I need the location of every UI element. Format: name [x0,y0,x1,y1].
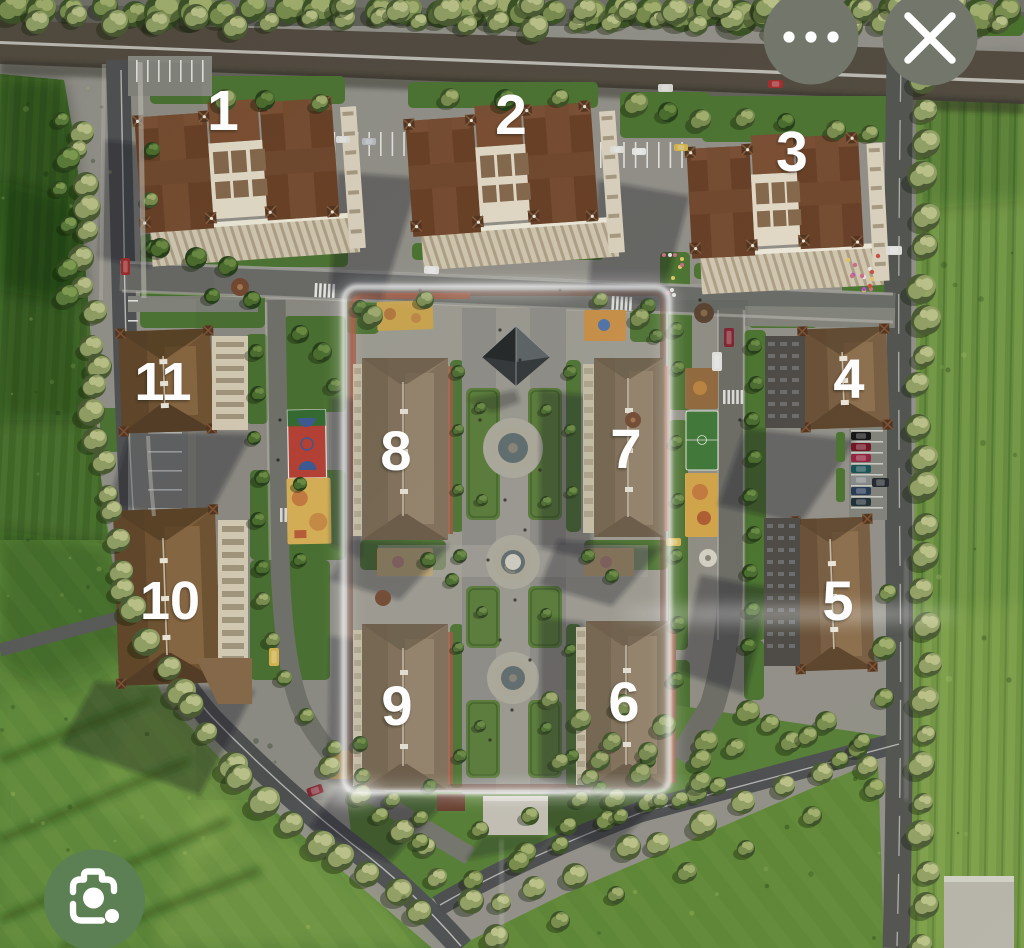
svg-text:8: 8 [380,419,411,482]
svg-text:1: 1 [207,79,239,143]
svg-text:3: 3 [776,120,808,184]
svg-text:4: 4 [833,347,864,410]
svg-text:9: 9 [381,674,412,737]
svg-text:7: 7 [610,417,641,480]
svg-text:5: 5 [822,569,853,632]
svg-text:6: 6 [608,670,639,733]
svg-text:10: 10 [140,571,200,631]
svg-text:2: 2 [495,83,527,147]
svg-text:11: 11 [134,352,191,412]
